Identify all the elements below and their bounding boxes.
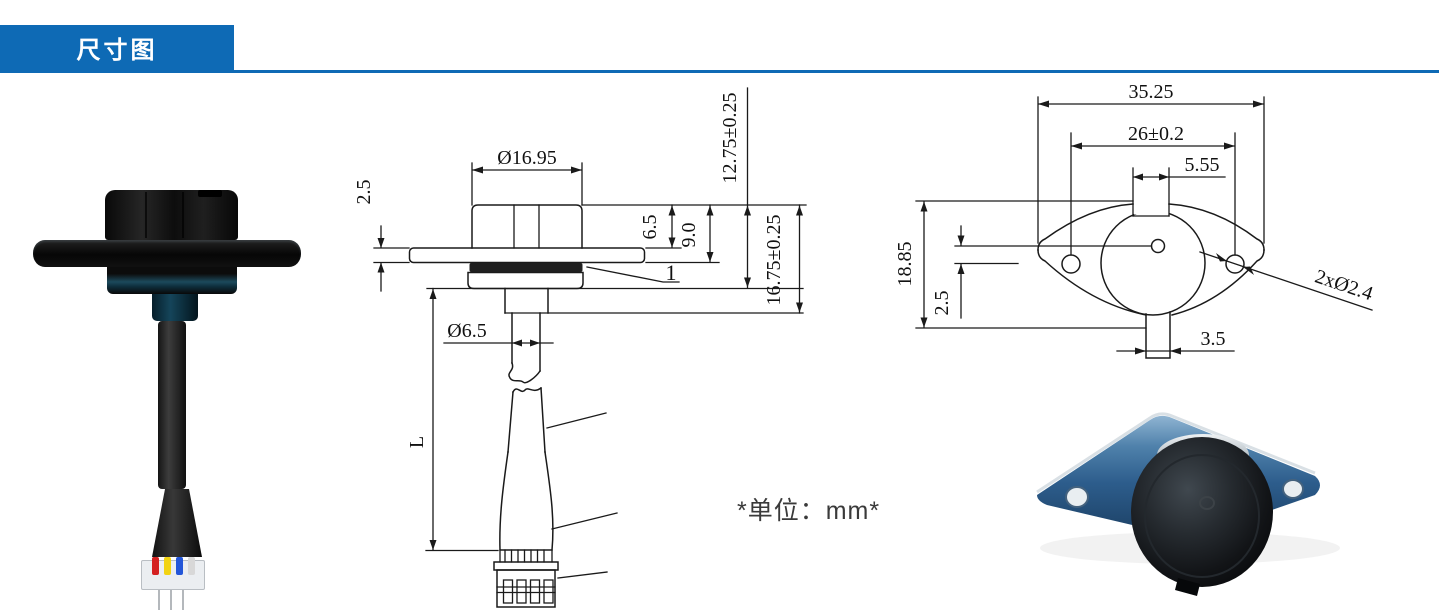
dim-cable-length: L	[406, 436, 428, 448]
dim-center-offset: 2.5	[931, 291, 953, 316]
dim-hole-spacing: 26±0.2	[1128, 123, 1184, 145]
units-note: *单位：mm*	[737, 491, 880, 527]
gasket-item-callout: 1	[666, 260, 677, 285]
dim-overall-width: 35.25	[1129, 81, 1174, 103]
dim-cable-diameter: Ø6.5	[447, 320, 486, 342]
product-photo-front	[1020, 398, 1340, 614]
photo-mount-hole-right	[1283, 480, 1303, 498]
dim-flange-thickness: 2.5	[353, 180, 375, 205]
top-view-drawing: 35.25 26±0.2 5.55 18.85 2.5	[894, 81, 1376, 358]
dim-tab-width: 3.5	[1201, 328, 1226, 350]
dim-body-depth: 12.75±0.25	[719, 93, 741, 184]
page: 尺寸图	[0, 0, 1439, 614]
dim-flange-depth: 9.0	[678, 223, 700, 248]
dim-overall-depth: 16.75±0.25	[763, 215, 785, 306]
dim-notch-width: 5.55	[1185, 154, 1220, 176]
photo-front-group	[1037, 414, 1340, 596]
photo-mount-hole-left	[1066, 487, 1088, 507]
photo-cap-front	[1131, 437, 1273, 587]
side-view-drawing: Ø16.95 2.5 6.5 9.0 12.75±0.25	[353, 88, 806, 607]
dim-mount-holes: 2xØ2.4	[1312, 265, 1375, 305]
dim-hex-height: 6.5	[639, 215, 661, 240]
dim-overall-height: 18.85	[894, 242, 916, 287]
dim-cap-diameter: Ø16.95	[497, 147, 556, 169]
